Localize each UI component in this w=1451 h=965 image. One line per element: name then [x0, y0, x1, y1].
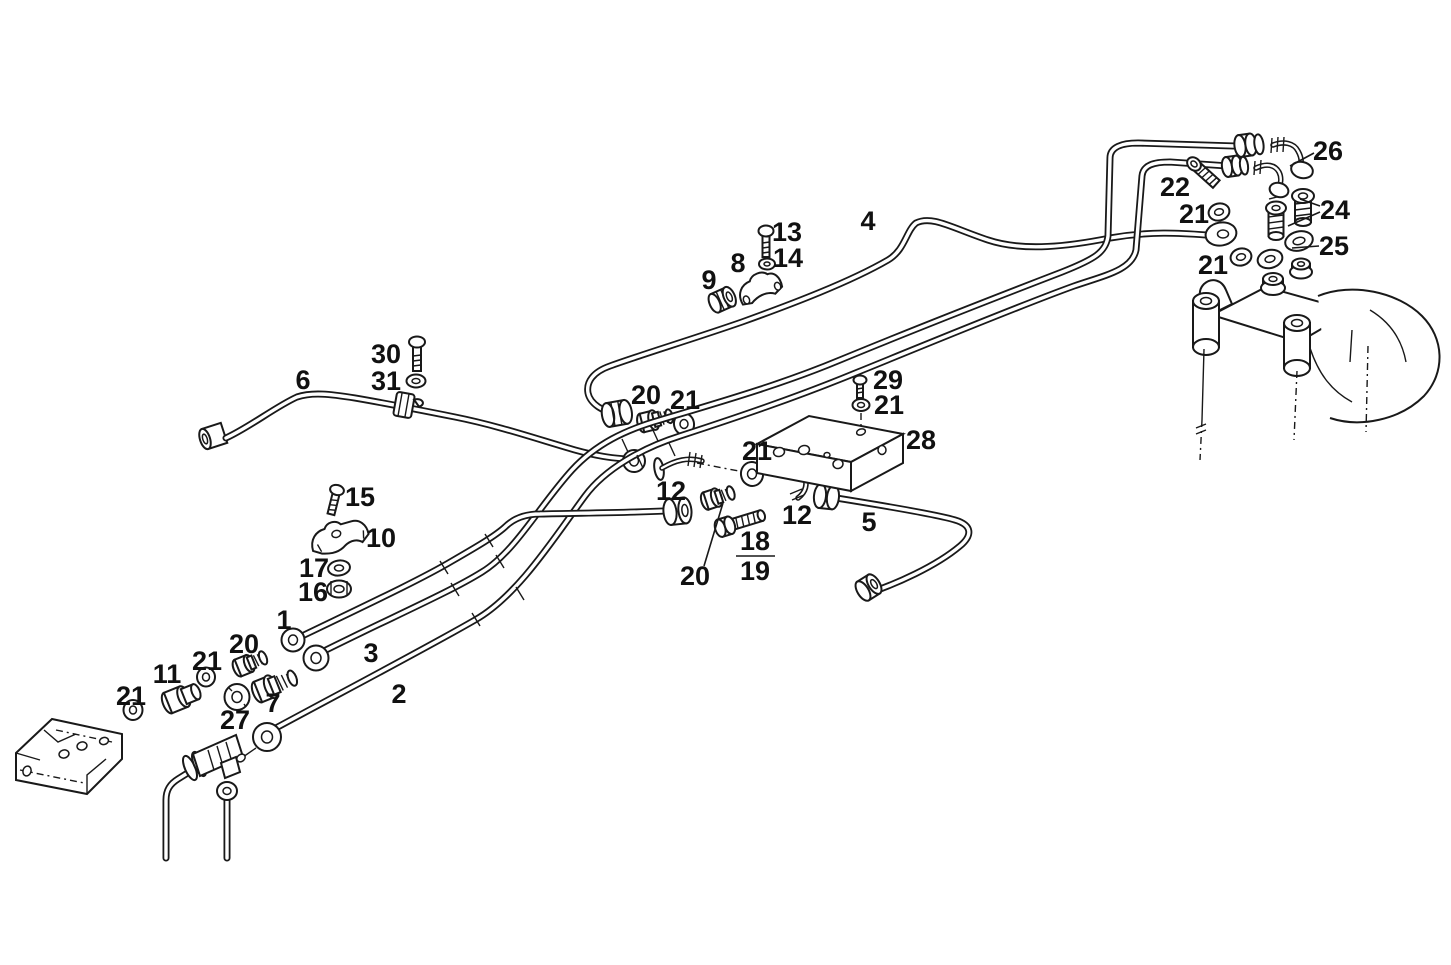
hidden-line [697, 463, 744, 472]
part-label-21: 21 [192, 646, 222, 676]
part-label-11: 11 [153, 659, 182, 689]
fitting-20-mid [699, 483, 737, 512]
washer-31 [407, 375, 426, 388]
part-label-19: 19 [740, 556, 770, 586]
part-label-4: 4 [860, 206, 875, 236]
part-label-9: 9 [701, 265, 716, 295]
part-label-8: 8 [730, 248, 745, 278]
part-label-10: 10 [366, 523, 396, 553]
part-label-3: 3 [363, 638, 378, 668]
bolt-30 [409, 337, 425, 372]
washer-25-b [1256, 247, 1285, 271]
part-label-21: 21 [116, 681, 146, 711]
part-label-12: 12 [656, 476, 686, 506]
part-label-1: 1 [276, 605, 291, 635]
part-label-26: 26 [1313, 136, 1343, 166]
part-label-17: 17 [299, 553, 329, 583]
part-label-21: 21 [670, 385, 700, 415]
part-label-5: 5 [861, 507, 876, 537]
washer-17 [327, 559, 351, 577]
clamp-10 [307, 513, 371, 558]
part-label-29: 29 [873, 365, 903, 395]
part-label-31: 31 [371, 366, 401, 396]
bolt-15 [324, 483, 345, 515]
part-label-21: 21 [742, 436, 772, 466]
part-label-7: 7 [265, 688, 280, 718]
part-label-22: 22 [1160, 172, 1190, 202]
diagram-page: 1234567891011121213141516171819202020212… [0, 0, 1451, 965]
part-label-25: 25 [1319, 231, 1349, 261]
part-label-20: 20 [229, 629, 259, 659]
filter-head [1193, 259, 1440, 461]
tee-fitting-assembly [166, 735, 243, 858]
washer-25-a [1283, 228, 1315, 253]
part-label-6: 6 [295, 365, 310, 395]
bolt-29 [854, 376, 867, 399]
part-label-24: 24 [1320, 195, 1350, 225]
part-label-21: 21 [1179, 199, 1209, 229]
nipple-24-b [1266, 202, 1286, 241]
part-label-18: 18 [740, 526, 770, 556]
washer-21-right-lower [1229, 246, 1253, 268]
union-nut-lower [1221, 154, 1250, 177]
part-label-20: 20 [680, 561, 710, 591]
diagram-canvas: 1234567891011121213141516171819202020212… [0, 0, 1451, 965]
part-label-2: 2 [391, 679, 406, 709]
part-label-12: 12 [782, 500, 812, 530]
part-label-15: 15 [345, 482, 375, 512]
part-label-30: 30 [371, 339, 401, 369]
part-label-28: 28 [906, 425, 936, 455]
union-nut-top [1233, 132, 1265, 158]
washer-21-block [853, 399, 870, 411]
elbow-26-b [1254, 160, 1290, 199]
part-label-27: 27 [220, 705, 250, 735]
part-label-21: 21 [1198, 250, 1228, 280]
mounting-block [16, 719, 122, 794]
pipe-5 [813, 483, 969, 603]
part-label-20: 20 [631, 380, 661, 410]
nipple-24-a [1292, 189, 1314, 226]
banjo-eyelet-3 [304, 646, 329, 671]
pipe-4-flare-nut [600, 399, 634, 428]
nut-16 [327, 581, 351, 598]
part-label-14: 14 [773, 243, 803, 273]
washer-21-right-upper [1207, 201, 1231, 223]
junction-block-28 [757, 416, 903, 491]
